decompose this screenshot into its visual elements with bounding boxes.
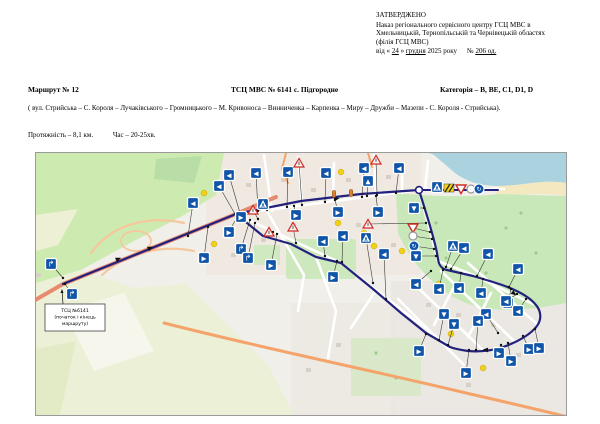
direction-sign-arrow-icon: ▶ [417,348,422,356]
approval-date-month: грудня [406,47,426,55]
direction-sign-arrow-icon: ▶ [509,358,514,366]
direction-sign-arrow-icon: ▶ [227,229,232,237]
direction-sign-arrow-icon: ↱ [69,290,76,299]
approval-date-line: від « 24 » грудня 2025 року№ 206 од. [376,47,588,56]
direction-sign-arrow-icon: ◀ [254,170,259,178]
direction-sign-arrow-icon: ▶ [202,255,207,263]
route-duration: Час – 20-25хв. [113,131,156,139]
sign-anchor-dot [395,192,397,194]
yellow-point-marker [201,190,207,196]
sign-anchor-dot [64,283,66,285]
start-label-text: ТСЦ №6141 [60,308,89,314]
sign-anchor-dot [249,219,251,221]
yellow-point-marker [335,220,341,226]
sign-anchor-dot [525,298,527,300]
direction-sign-arrow-icon: ▲ [366,178,371,186]
sign-anchor-dot [433,248,435,250]
sign-anchor-dot [366,195,368,197]
direction-sign-arrow-icon: ▼ [442,311,447,319]
direction-sign-arrow-icon: ▶ [294,212,299,220]
yellow-point-marker [338,169,344,175]
direction-sign-arrow-icon: ▶ [376,209,381,217]
direction-sign-arrow-icon: ◀ [227,172,232,180]
sign-anchor-dot [295,242,297,244]
sign-anchor-dot [442,269,444,271]
direction-sign-arrow-icon: ▶ [269,262,274,270]
sign-anchor-dot [534,328,536,330]
sign-anchor-dot [257,218,259,220]
sign-anchor-dot [336,260,338,262]
start-label-text: маршруту) [62,321,88,327]
direction-sign-arrow-icon: ◀ [484,311,489,319]
document-page: ЗАТВЕРДЖЕНО Наказ регіонального сервісно… [0,0,600,424]
sign-anchor-dot [510,288,512,290]
direction-sign-arrow-icon: ◀ [479,290,484,298]
direction-sign-arrow-icon: ◀ [437,286,442,294]
sign-anchor-dot [62,277,64,279]
direction-sign-arrow-icon: ◀ [382,251,387,259]
approval-date-day: 24 [392,47,399,55]
sign-anchor-dot [207,226,209,228]
traffic-signal-marker [332,191,335,198]
sign-anchor-dot [516,293,518,295]
sign-anchor-dot [385,298,387,300]
approval-order-number: 206 од. [475,47,496,55]
route-number: Маршрут № 12 [28,85,79,94]
direction-sign-arrow-icon: ◀ [486,251,491,259]
direction-sign-arrow-icon: ◀ [516,266,521,274]
direction-sign-arrow-icon: ◀ [217,183,222,191]
sign-anchor-dot [425,222,427,224]
approval-line: Хмельницькій, Тернопільській та Чернівец… [376,29,588,38]
approval-block: ЗАТВЕРДЖЕНО Наказ регіонального сервісно… [376,11,588,56]
direction-sign-arrow-icon: ◀ [341,233,346,241]
traffic-signal-marker [349,190,352,197]
start-label-text: (початок і кінець [54,315,96,321]
sign-anchor-dot [435,255,437,257]
roundabout-node [416,187,423,194]
roundabout-arrows-icon: ↻ [411,243,416,250]
sign-anchor-dot [276,233,278,235]
direction-sign-arrow-icon: ▼ [414,253,419,261]
route-street-list: ( вул. Стрийська – С. Короля – Лучаківсь… [28,103,573,114]
direction-sign-arrow-icon: ◀ [286,169,291,177]
direction-sign-arrow-icon: ◀ [191,200,196,208]
sign-anchor-dot [429,231,431,233]
service-center-title: ТСЦ МВС № 6141 с. Підгородне [231,85,338,94]
direction-sign-arrow-icon: ↱ [48,260,55,269]
yellow-point-marker [399,248,405,254]
direction-sign-arrow-icon: ▼ [412,205,417,213]
route-map: ↱↱◀◀◀◀◀◀◀◀▲▶▶▶▶▶↱↱▶▶▶◀◀▼↻◀▼↻◀◀◀◀◀◀◀◀◀◀◀▼… [35,152,567,416]
sign-anchor-dot [334,199,336,201]
direction-sign-arrow-icon: ▶ [527,346,532,354]
route-metrics: Протяжність – 8,1 км. Час – 20-25хв. [28,131,156,139]
direction-sign-arrow-icon: ◀ [476,318,481,326]
sign-anchor-dot [301,204,303,206]
direction-sign-arrow-icon: ▶ [239,214,244,222]
sign-anchor-dot [476,275,478,277]
direction-sign-arrow-icon: ◀ [414,281,419,289]
sign-anchor-dot [482,278,484,280]
direction-sign-arrow-icon: ▶ [497,350,502,358]
title-row: Маршрут № 12 ТСЦ МВС № 6141 с. Підгородн… [0,85,600,97]
sign-anchor-dot [445,266,447,268]
yellow-point-marker [211,241,217,247]
direction-sign-arrow-icon: ◀ [462,245,467,253]
sign-anchor-dot [468,349,470,351]
sign-anchor-dot [430,270,432,272]
category-label: Категорія – B, BE, C1, D1, D [440,85,533,94]
sign-anchor-dot [460,272,462,274]
sign-anchor-dot [376,194,378,196]
roundabout-arrows-icon: ↻ [476,186,481,193]
direction-sign-arrow-icon: ◀ [324,170,329,178]
park-green [351,338,421,396]
approval-line: (філія ГСЦ МВС) [376,38,588,47]
sign-anchor-dot [361,196,363,198]
direction-sign-arrow-icon: ▶ [464,370,469,378]
sign-anchor-dot [423,207,425,209]
map-canvas: ↱↱◀◀◀◀◀◀◀◀▲▶▶▶▶▶↱↱▶▶▶◀◀▼↻◀▼↻◀◀◀◀◀◀◀◀◀◀◀▼… [36,153,566,415]
yellow-point-marker [371,243,377,249]
approval-line: Наказ регіонального сервісного центру ГС… [376,21,588,30]
sign-anchor-dot [447,344,449,346]
direction-sign-arrow-icon: ◀ [362,165,367,173]
direction-sign-arrow-icon: ◀ [504,298,509,306]
direction-sign-arrow-icon: ▶ [331,274,336,282]
forest-patch [154,156,202,183]
sign-anchor-dot [522,335,524,337]
approval-title: ЗАТВЕРДЖЕНО [376,11,588,20]
direction-sign-arrow-icon: ▼ [452,321,457,329]
route-length: Протяжність – 8,1 км. [28,131,93,139]
direction-sign-arrow-icon: ◀ [397,165,402,173]
sign-anchor-dot [372,282,374,284]
direction-sign-arrow-icon: ▶ [336,209,341,217]
sign-anchor-dot [500,344,502,346]
direction-sign-arrow-icon: ▶ [537,345,542,353]
sign-anchor-dot [187,235,189,237]
sign-anchor-dot [431,238,433,240]
direction-sign-arrow-icon: ↱ [245,254,252,263]
sign-anchor-dot [254,222,256,224]
sign-anchor-dot [497,332,499,334]
sign-anchor-dot [438,339,440,341]
direction-sign-arrow-icon: ◀ [457,285,462,293]
sign-anchor-dot [450,268,452,270]
direction-sign-arrow-icon: ◀ [516,308,521,316]
direction-sign-arrow-icon: ◀ [321,238,326,246]
circular-sign [409,232,417,240]
sign-anchor-dot [324,255,326,257]
sign-anchor-dot [341,261,343,263]
sign-anchor-dot [425,333,427,335]
sign-anchor-dot [475,349,477,351]
sign-anchor-dot [286,206,288,208]
yellow-point-marker [480,365,486,371]
sign-anchor-dot [508,286,510,288]
sign-anchor-dot [507,342,509,344]
sign-anchor-dot [293,205,295,207]
sign-anchor-dot [324,201,326,203]
